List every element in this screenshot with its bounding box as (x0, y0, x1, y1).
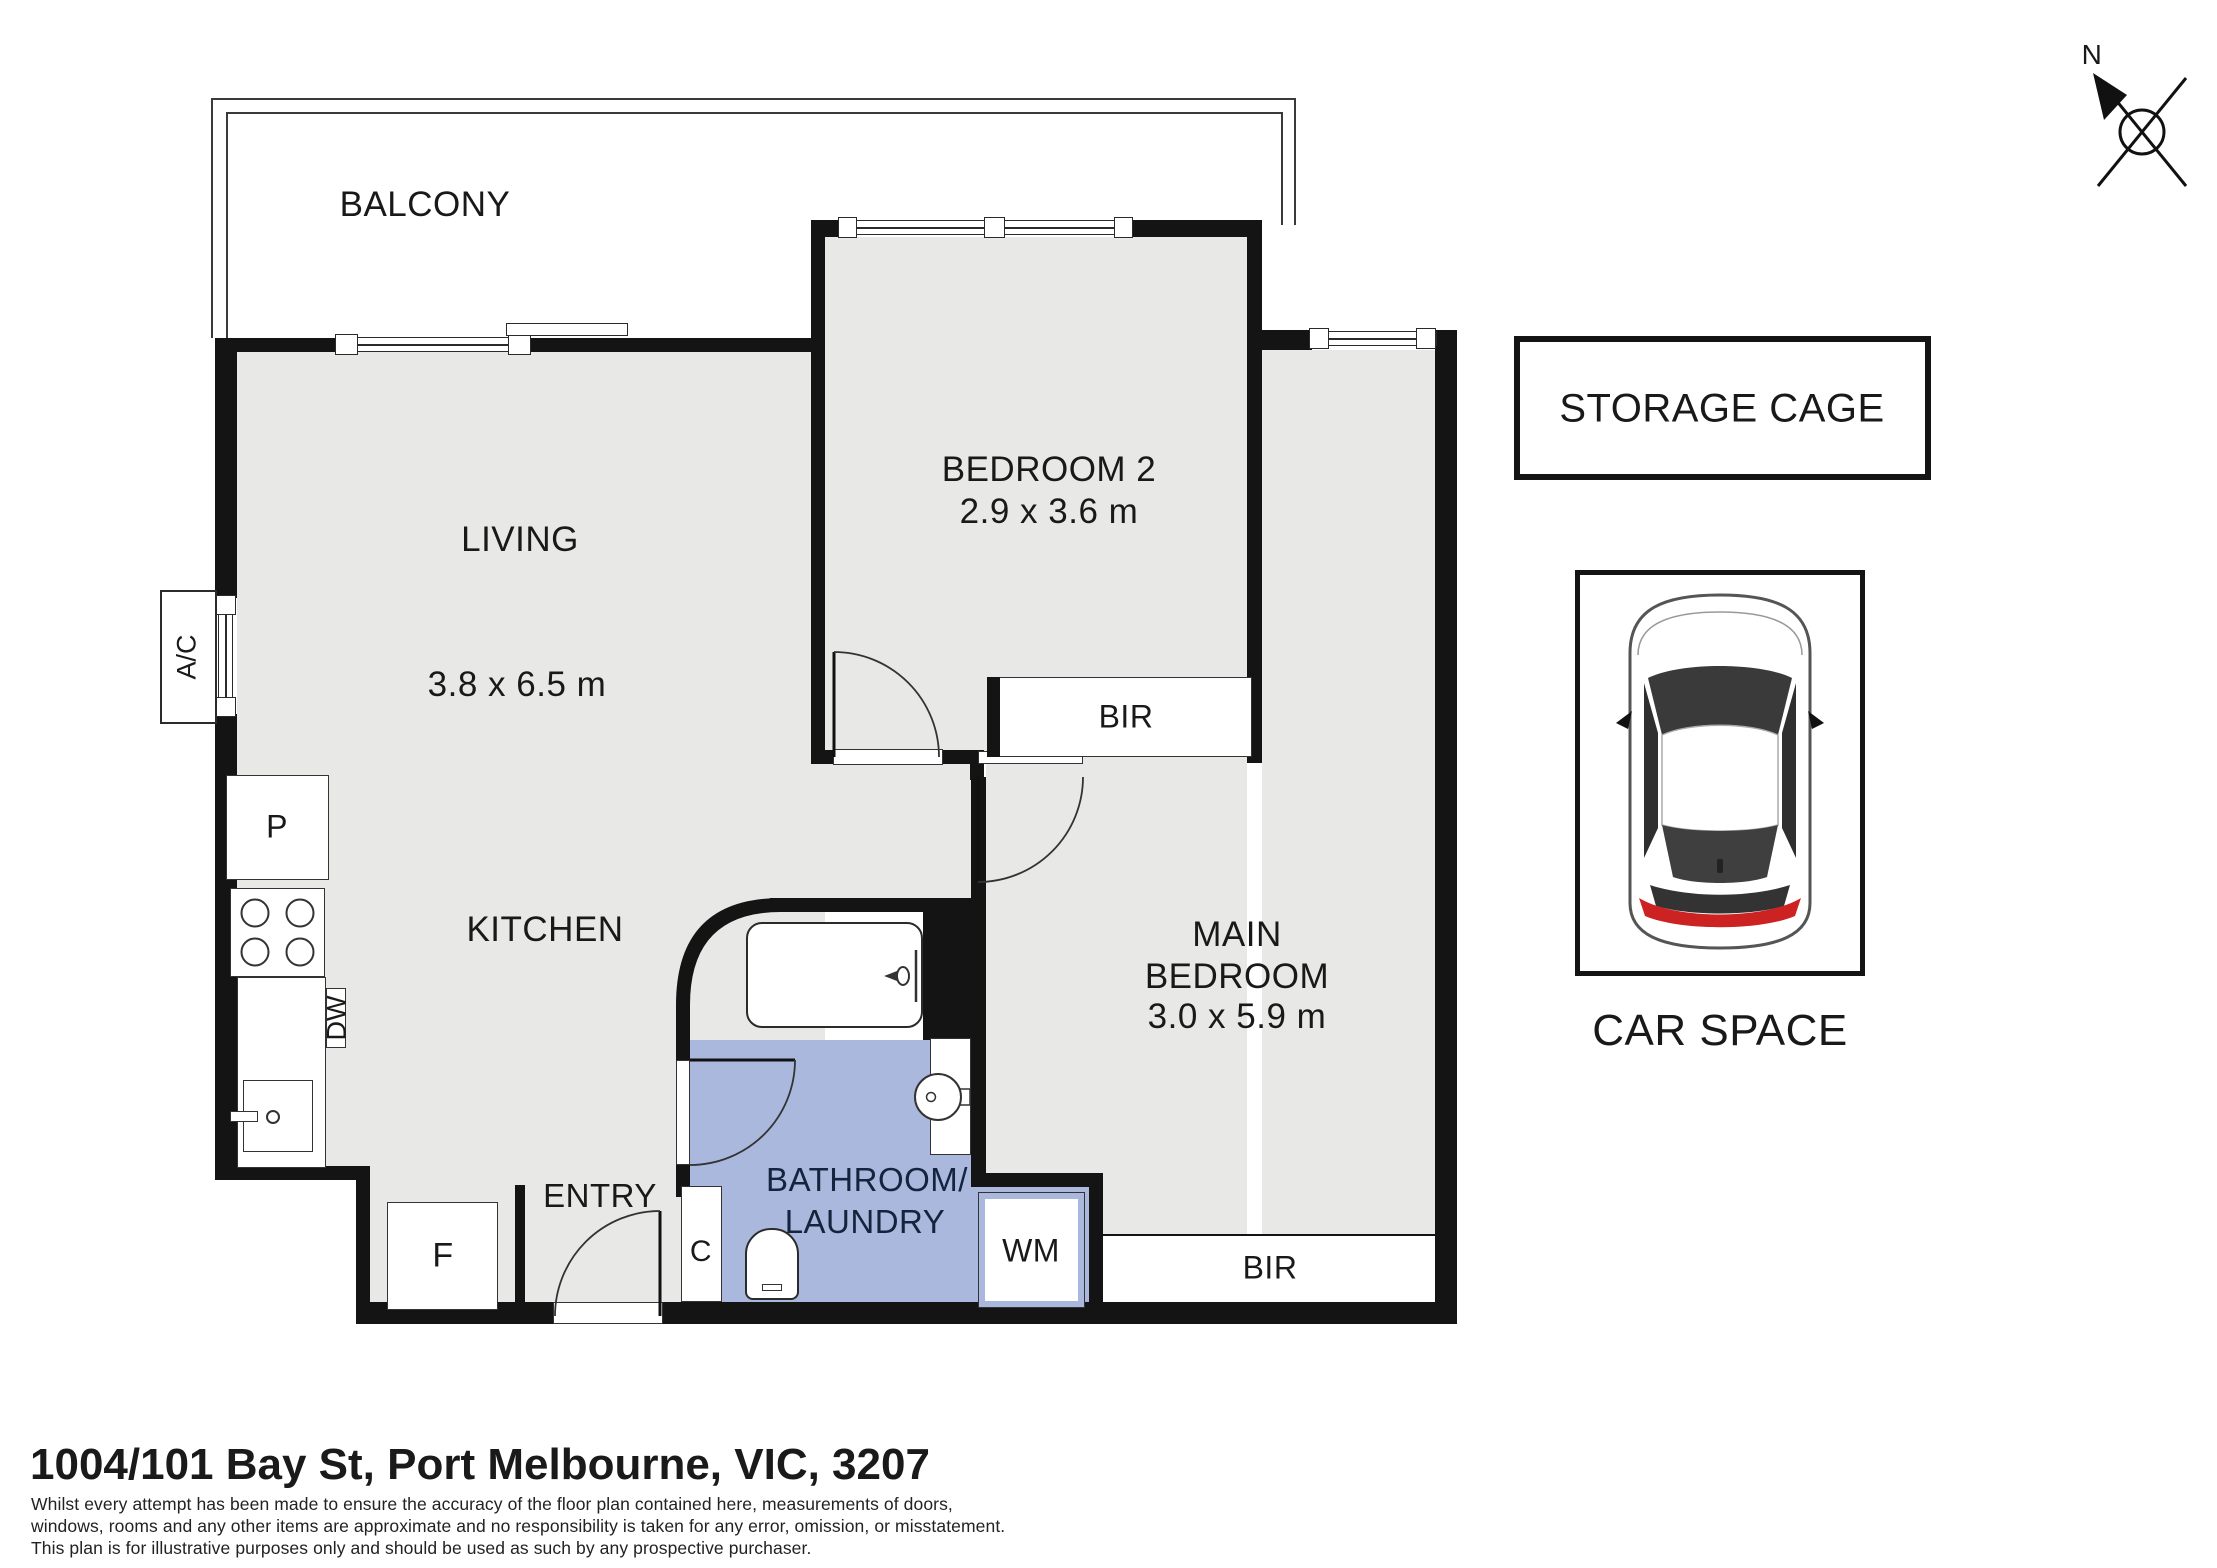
disclaimer-line2: windows, rooms and any other items are a… (31, 1516, 1005, 1537)
door-arc-bedroom2 (834, 652, 939, 757)
bathroom-curved-wall (676, 898, 923, 1060)
label-fridge: F (432, 1237, 453, 1276)
label-car-space: CAR SPACE (1592, 1006, 1848, 1056)
label-storage-cage: STORAGE CAGE (1559, 387, 1884, 432)
bathroom-basin (915, 1074, 970, 1120)
label-kitchen: KITCHEN (466, 910, 623, 950)
label-mainbed-dimensions: 3.0 x 5.9 m (1148, 997, 1327, 1037)
label-mainbed-line2: BEDROOM (1145, 957, 1329, 997)
disclaimer-line3: This plan is for illustrative purposes o… (31, 1538, 811, 1559)
label-washing-machine: WM (1002, 1233, 1060, 1270)
floorplan-canvas: BALCONY LIVING 3.8 x 6.5 m KITCHEN BEDRO… (0, 0, 2217, 1568)
door-arc-mainbed (978, 777, 1083, 882)
north-compass-icon (2093, 73, 2186, 186)
label-air-conditioner: A/C (172, 634, 203, 679)
stove-burners (242, 900, 314, 966)
bathtub-tap (884, 950, 916, 1002)
door-arc-bathroom (690, 1060, 795, 1165)
label-pantry: P (266, 809, 288, 846)
label-north: N (2082, 39, 2103, 71)
label-dishwasher: DW (322, 996, 353, 1041)
car-icon (1616, 595, 1824, 948)
label-bir-bedroom2: BIR (1099, 699, 1154, 736)
label-bathroom-line1: BATHROOM/ (766, 1161, 968, 1199)
label-bedroom2: BEDROOM 2 (942, 450, 1157, 490)
label-mainbed-line1: MAIN (1192, 915, 1282, 955)
sink-drain (267, 1111, 279, 1123)
label-living: LIVING (461, 520, 579, 560)
label-bir-mainbed: BIR (1243, 1250, 1298, 1287)
label-bedroom2-dimensions: 2.9 x 3.6 m (960, 492, 1139, 532)
label-entry: ENTRY (543, 1177, 657, 1215)
label-living-dimensions: 3.8 x 6.5 m (428, 665, 607, 705)
label-bathroom-line2: LAUNDRY (785, 1203, 946, 1241)
label-balcony: BALCONY (340, 185, 511, 225)
door-arc-entry (555, 1211, 660, 1316)
plan-overlay (0, 0, 2217, 1568)
label-cupboard: C (690, 1235, 712, 1269)
disclaimer-line1: Whilst every attempt has been made to en… (31, 1494, 953, 1515)
address-title: 1004/101 Bay St, Port Melbourne, VIC, 32… (30, 1440, 930, 1490)
